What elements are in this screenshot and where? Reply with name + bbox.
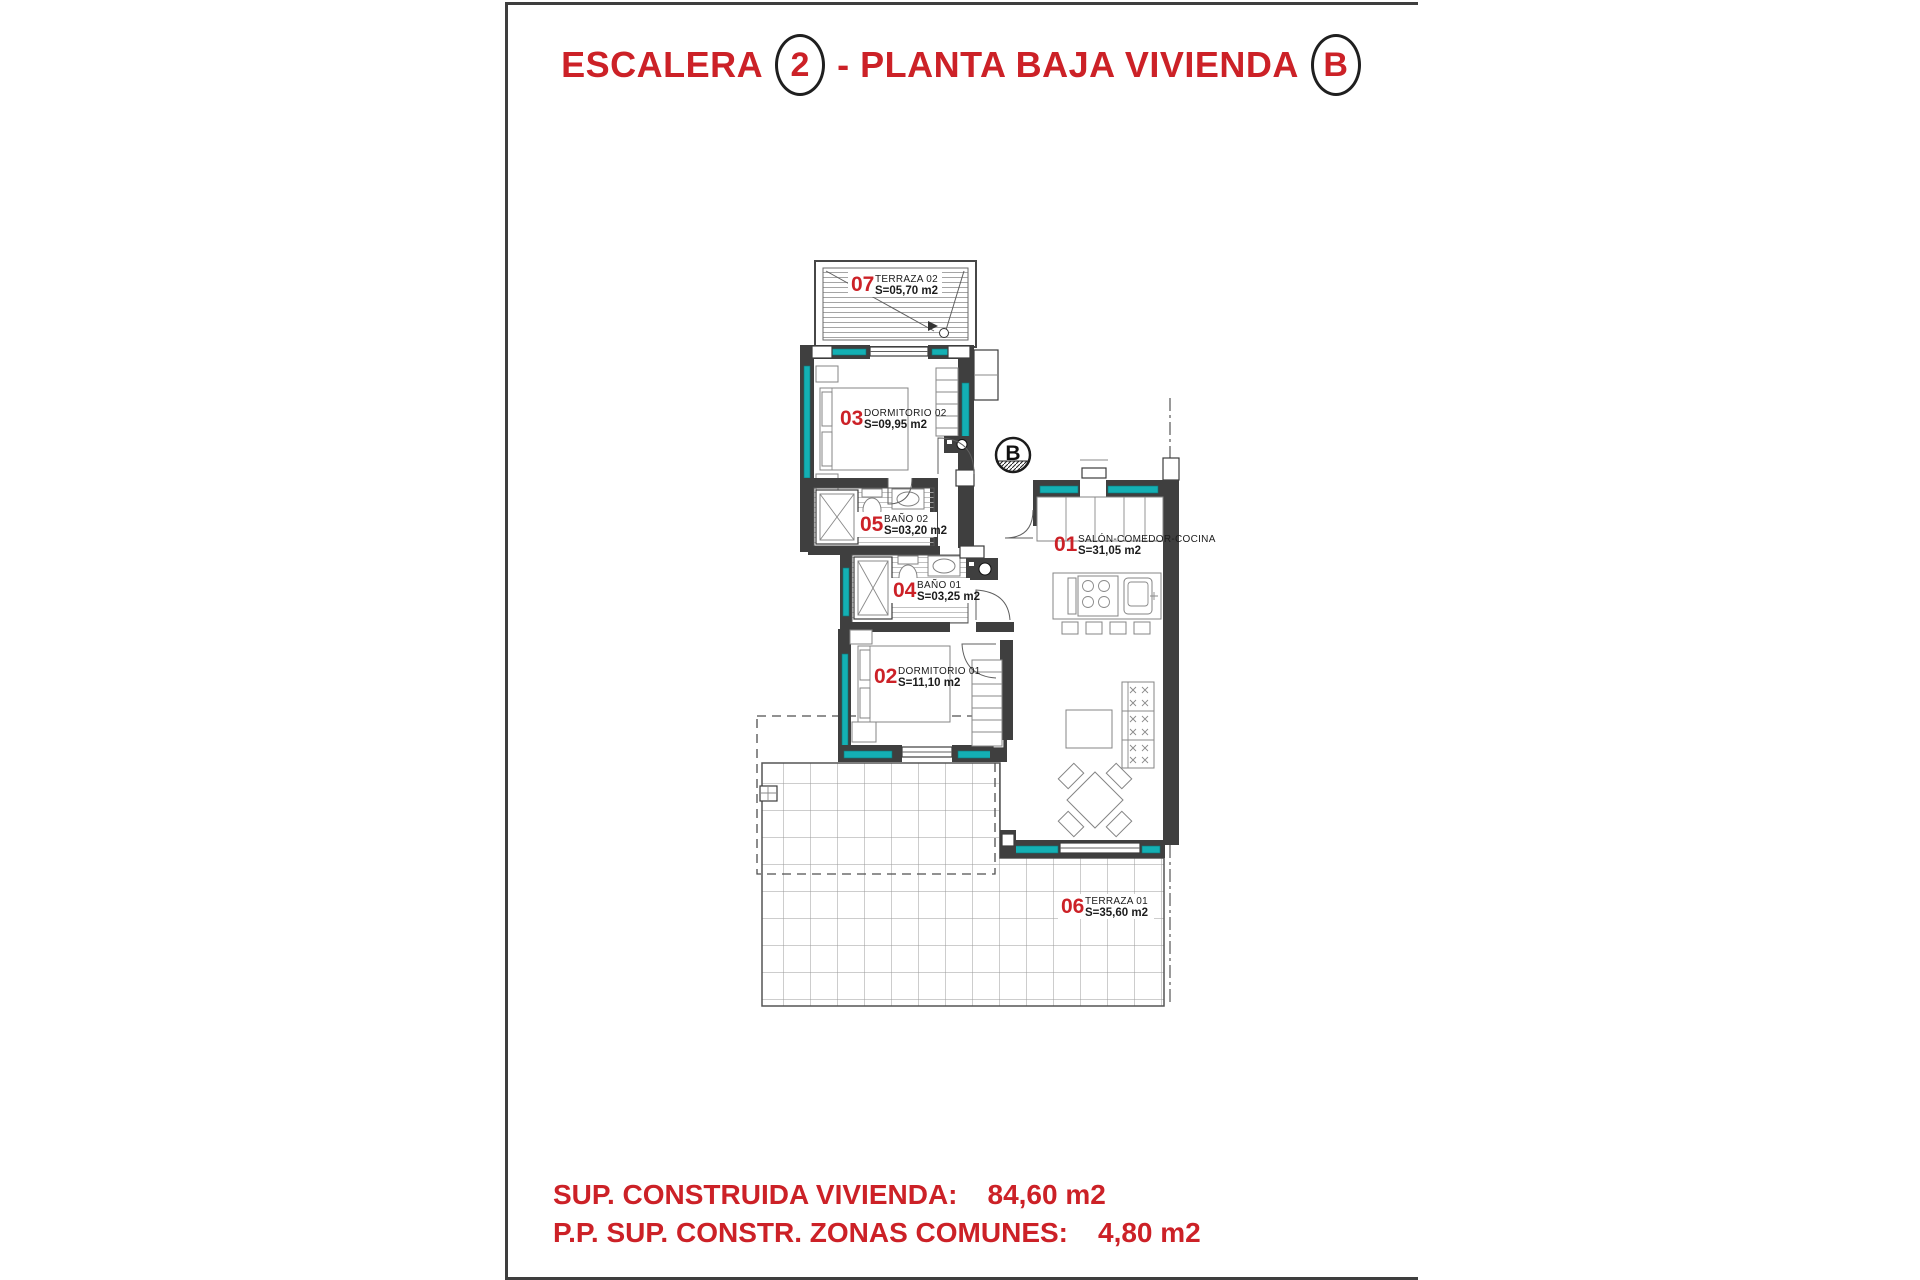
room-area: S=05,70 m2	[875, 285, 938, 297]
room-number: 06	[1061, 895, 1084, 918]
area-summary: SUP. CONSTRUIDA VIVIENDA:84,60 m2 P.P. S…	[553, 1176, 1201, 1252]
room-area: S=03,25 m2	[917, 591, 980, 603]
summary-line-1: SUP. CONSTRUIDA VIVIENDA:84,60 m2	[553, 1176, 1201, 1214]
room-name: DORMITORIO 02	[864, 408, 947, 419]
living-kitchen	[1000, 458, 1179, 858]
floor-plan-svg: B 07 TERRAZA 02 S=05,70 m2 03 DORMITORIO…	[0, 0, 1920, 1280]
room-number: 05	[860, 513, 884, 536]
section-marker-b: B	[996, 438, 1030, 472]
boundary-post-symbol	[760, 786, 777, 801]
summary-label-1: SUP. CONSTRUIDA VIVIENDA:	[553, 1179, 958, 1210]
nightstand	[816, 366, 838, 382]
room-name: TERRAZA 01	[1085, 896, 1148, 907]
room-area: S=31,05 m2	[1078, 545, 1141, 557]
drain-icon	[940, 329, 949, 338]
room-area: S=35,60 m2	[1085, 907, 1148, 919]
room-name: BAÑO 01	[917, 578, 961, 591]
room-number: 07	[851, 273, 874, 296]
nightstand	[852, 722, 876, 742]
room-area: S=11,10 m2	[898, 677, 960, 689]
bedroom-01	[838, 629, 1013, 762]
room-number: 04	[893, 579, 917, 602]
door-arc	[976, 590, 1010, 620]
room-number: 02	[874, 665, 897, 688]
door-arc	[1005, 510, 1033, 538]
closet-shelves	[936, 368, 958, 436]
room-area: S=09,95 m2	[864, 419, 927, 431]
entry-door-leaf	[1082, 468, 1106, 478]
room-name: DORMITORIO 01	[898, 666, 981, 677]
coffee-table	[1066, 710, 1112, 748]
summary-value-2: 4,80 m2	[1098, 1217, 1201, 1248]
section-marker-letter: B	[1005, 442, 1020, 465]
room-name: BAÑO 02	[884, 512, 928, 525]
room-number: 01	[1054, 533, 1078, 556]
room-name: SALÓN-COMEDOR-COCINA	[1078, 532, 1216, 545]
room-area: S=03,20 m2	[884, 525, 947, 537]
sofa	[1122, 682, 1154, 768]
nightstand	[850, 630, 872, 644]
room-name: TERRAZA 02	[875, 274, 938, 285]
summary-label-2: P.P. SUP. CONSTR. ZONAS COMUNES:	[553, 1217, 1068, 1248]
room-number: 03	[840, 407, 863, 430]
summary-value-1: 84,60 m2	[988, 1179, 1106, 1210]
summary-line-2: P.P. SUP. CONSTR. ZONAS COMUNES:4,80 m2	[553, 1214, 1201, 1252]
